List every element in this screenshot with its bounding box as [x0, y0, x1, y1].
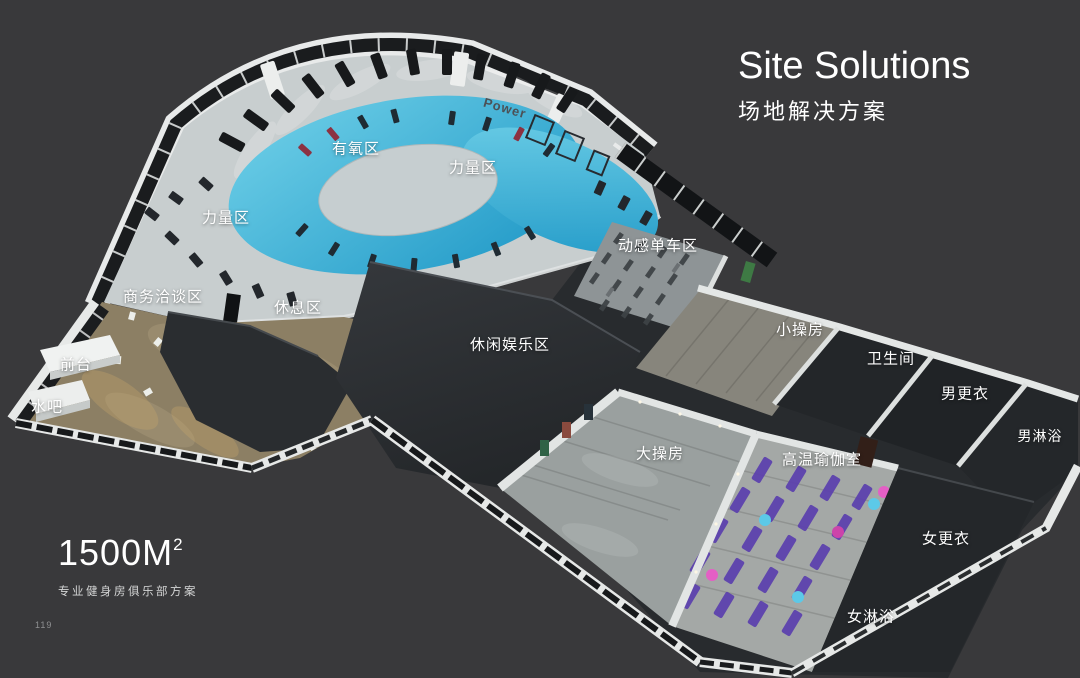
footer-caption: 专业健身房俱乐部方案	[58, 583, 198, 599]
area-label-leisure: 休闲娱乐区	[470, 334, 550, 355]
area-label-men-shower: 男淋浴	[1018, 426, 1063, 446]
area-label-men-locker: 男更衣	[941, 383, 989, 404]
area-label-strength-right: 力量区	[449, 157, 497, 178]
title-block: Site Solutions 场地解决方案	[738, 46, 970, 126]
area-label-front-desk: 前台	[60, 354, 92, 375]
area-label-restroom: 卫生间	[867, 348, 915, 369]
area-size-sup: 2	[173, 535, 183, 554]
area-label-women-locker: 女更衣	[922, 528, 970, 549]
area-label-business-lounge: 商务洽谈区	[123, 286, 203, 307]
area-label-big-studio: 大操房	[636, 443, 684, 464]
area-label-rest-area: 休息区	[274, 297, 322, 318]
area-label-spinning: 动感单车区	[618, 235, 698, 256]
footer-block: 1500M2 专业健身房俱乐部方案	[58, 532, 198, 599]
slide: Site Solutions 场地解决方案 有氧区 力量区 力量区 动感单车区 …	[0, 0, 1080, 678]
area-label-water-bar: 水吧	[31, 396, 63, 417]
page-title: Site Solutions	[738, 46, 970, 88]
area-label-small-studio: 小操房	[776, 319, 824, 340]
area-label-women-shower: 女淋浴	[847, 606, 895, 627]
page-number: 119	[35, 620, 52, 630]
area-label-cardio: 有氧区	[332, 138, 380, 159]
area-size: 1500M2	[58, 532, 198, 574]
area-label-hot-yoga: 高温瑜伽室	[782, 449, 862, 470]
area-label-strength-left: 力量区	[202, 207, 250, 228]
page-subtitle: 场地解决方案	[738, 94, 970, 126]
area-size-value: 1500M	[58, 532, 173, 573]
